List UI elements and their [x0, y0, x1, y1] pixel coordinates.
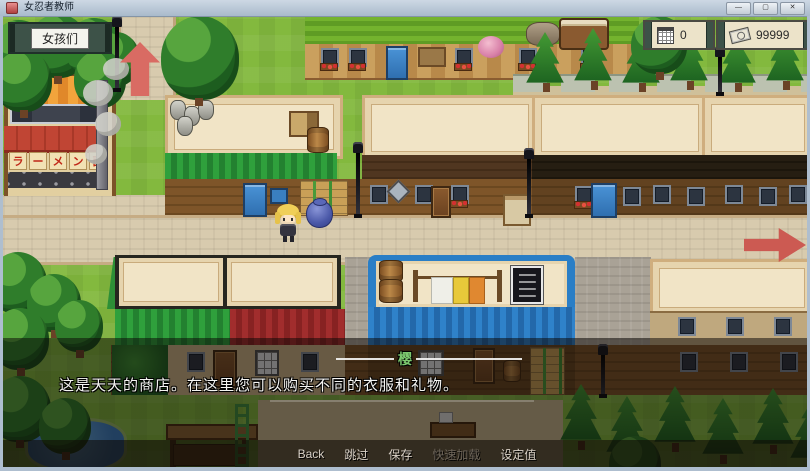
- speaker-name-rule: [336, 358, 394, 360]
- menu-item-back[interactable]: Back: [298, 447, 325, 461]
- steam-puff: [85, 144, 107, 164]
- awning-green: [165, 153, 337, 182]
- blue-jar: [306, 200, 333, 228]
- title-bar: 女忍者教师 — ▢ ✕: [0, 0, 810, 17]
- steam-puff: [95, 112, 121, 136]
- lamp-post: [718, 56, 722, 94]
- barrel: [307, 127, 329, 153]
- flower-box: [574, 201, 592, 209]
- speaker-name-rule: [416, 358, 522, 360]
- clothesline-pole: [413, 270, 418, 302]
- money-counter-value: 99999: [756, 28, 789, 42]
- dialogue-text: 这是天天的商店。在这里您可以购买不同的衣服和礼物。: [59, 374, 779, 395]
- building-rooftop: [702, 95, 807, 161]
- menu-item-quickload: 快速加载: [432, 446, 480, 463]
- building-window: [726, 317, 744, 336]
- flower-box: [450, 200, 468, 208]
- ramen-shop-base: [8, 172, 104, 188]
- menu-bar: Back 跳过 保存 快速加载 设定值: [3, 440, 807, 467]
- building-rooftop: [650, 259, 807, 317]
- building-window: [370, 185, 388, 204]
- building-rooftop: [119, 258, 223, 306]
- menu-item-skip[interactable]: 跳过: [344, 446, 368, 463]
- day-counter-value: 0: [680, 28, 687, 42]
- app-icon: [6, 2, 18, 14]
- flower-box: [454, 63, 472, 71]
- maximize-button[interactable]: ▢: [753, 2, 778, 15]
- game-viewport: ラ ー メ ン 面: [3, 16, 807, 467]
- calendar-icon: [657, 27, 674, 44]
- window-border-bottom: [0, 467, 810, 471]
- ramen-sign-char: メ: [49, 152, 67, 170]
- tree-pine: [573, 28, 613, 90]
- alley-stone: [575, 257, 651, 345]
- flower-bush-pink: [478, 36, 504, 58]
- menu-item-settings[interactable]: 设定值: [500, 446, 536, 463]
- barrel: [379, 279, 403, 303]
- building-window: [678, 317, 696, 336]
- flower-box: [348, 63, 366, 71]
- clothesline-pole: [497, 270, 502, 302]
- speaker-name: 樱: [392, 349, 418, 369]
- building-window-blue: [270, 188, 288, 204]
- girls-menu-label: 女孩们: [31, 28, 89, 49]
- money-counter: 99999: [716, 20, 807, 50]
- banknote-icon: [729, 26, 752, 43]
- lamp-post: [527, 158, 531, 216]
- tree-pine: [525, 32, 565, 92]
- ramen-sign-char: ラ: [9, 152, 27, 170]
- building-window: [789, 185, 807, 204]
- day-counter: 0: [643, 20, 715, 50]
- menu-item-save[interactable]: 保存: [388, 446, 412, 463]
- hanging-cloth-yellow: [453, 277, 469, 304]
- pot: [177, 116, 193, 136]
- building-door-blue: [386, 46, 408, 80]
- building-window: [774, 317, 792, 336]
- building-window: [759, 187, 777, 206]
- building-eave: [362, 155, 532, 179]
- hanging-cloth-white: [431, 277, 453, 304]
- building-rooftop: [532, 95, 708, 161]
- building-window: [687, 187, 705, 206]
- close-button[interactable]: ✕: [780, 2, 805, 15]
- building-window: [653, 185, 671, 204]
- building-eave-dark: [532, 155, 807, 179]
- steam-puff: [83, 80, 113, 106]
- building-rooftop: [362, 95, 538, 161]
- wall-picture: [418, 47, 446, 67]
- window-title: 女忍者教师: [24, 0, 74, 16]
- building-door-blue: [243, 183, 267, 217]
- building-rooftop: [227, 258, 337, 306]
- building-window: [725, 185, 743, 204]
- building-door: [431, 186, 451, 218]
- shop-signboard: [511, 266, 543, 304]
- building-door-blue: [591, 183, 617, 218]
- tree-round: [161, 16, 239, 100]
- flower-box: [320, 63, 338, 71]
- game-window: 女忍者教师 — ▢ ✕: [0, 0, 810, 471]
- lamp-post: [356, 152, 360, 216]
- player-character: [274, 204, 302, 242]
- ramen-sign-char: ー: [29, 152, 47, 170]
- minimize-button[interactable]: —: [726, 2, 751, 15]
- girls-menu-button[interactable]: 女孩们: [8, 22, 112, 54]
- hanging-cloth-orange: [469, 277, 485, 304]
- window-border-left: [0, 16, 3, 471]
- building-window: [623, 187, 641, 206]
- message-box-edge: [270, 400, 534, 402]
